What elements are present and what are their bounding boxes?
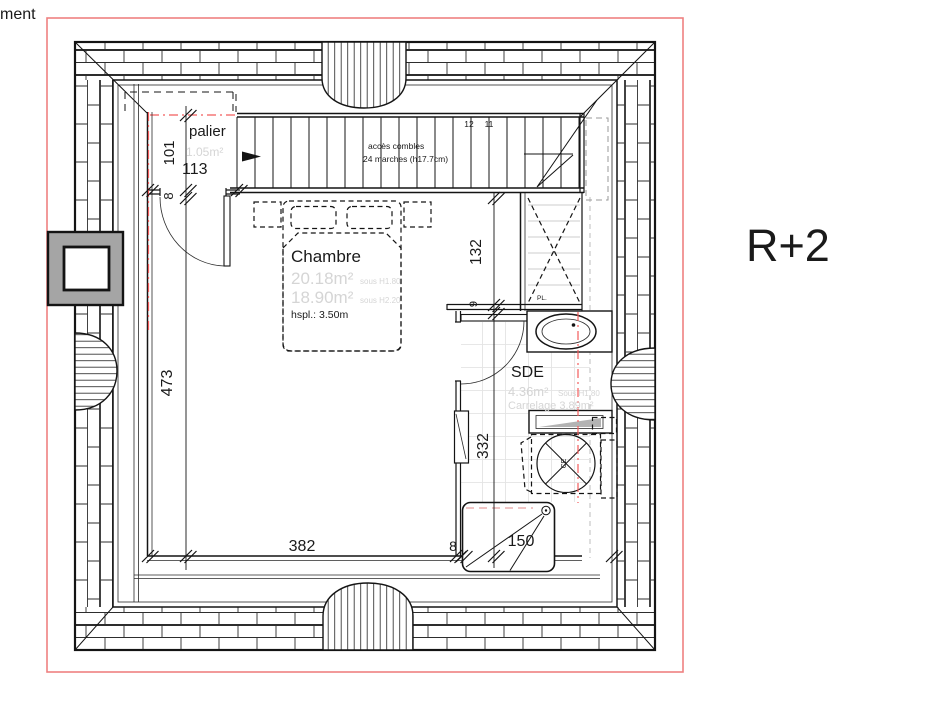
sink-counter <box>527 311 612 352</box>
sde-area-note: Sous H1.80 <box>558 389 600 398</box>
closet-cross-dashed <box>528 198 580 303</box>
palier-door-leaf <box>224 196 230 266</box>
dim-closet-depth: 132 <box>468 239 485 265</box>
chimney-flue <box>48 232 123 305</box>
sink-faucet <box>572 323 576 327</box>
sde-tiling-label: Carrelage 3.89m² <box>508 400 594 412</box>
dim-palier-width: 113 <box>182 161 208 178</box>
pillow-right <box>347 207 392 229</box>
room-label-sde: SDE <box>511 364 544 381</box>
floor-plan-page: 12 11 accès combles 24 marches (h17.7cm)… <box>0 0 930 725</box>
closet-shelves <box>528 205 580 285</box>
stair-step-number-11: 11 <box>485 119 494 129</box>
dim-sde-depth: 332 <box>475 433 492 459</box>
stairs-access-label: accès combles <box>368 141 424 151</box>
nightstand-left <box>254 202 281 227</box>
stair-step-number-12: 12 <box>464 119 474 129</box>
palier-door-swing <box>160 197 224 266</box>
chambre-area-h180-note: sous H1.80 <box>360 277 401 286</box>
floor-plan-drawing: 12 11 accès combles 24 marches (h17.7cm)… <box>0 0 930 725</box>
dim-chambre-width: 382 <box>289 538 316 555</box>
dormer-top <box>322 42 406 108</box>
room-label-chambre: Chambre <box>291 247 361 266</box>
chambre-ceiling-height: hspl.: 3.50m <box>291 309 348 321</box>
floor-level-label: R+2 <box>746 220 830 271</box>
stair-direction-arrow <box>242 152 261 162</box>
palier-area-label: 1.05m² <box>186 145 223 159</box>
chambre-area-h220-note: sous H2.20 <box>360 296 401 305</box>
attic-hatch-dashed <box>586 118 608 200</box>
stair-treads <box>237 117 579 188</box>
pillow-left <box>291 207 336 229</box>
room-label-palier: palier <box>189 123 226 140</box>
dormer-bottom <box>323 583 413 650</box>
dim-sde-width: 150 <box>508 533 535 550</box>
chambre-area-h180: 20.18m² <box>291 269 354 288</box>
staircase: 12 11 accès combles 24 marches (h17.7cm) <box>230 100 608 200</box>
closet-label: PL. <box>537 295 547 302</box>
chambre-labels: Chambre 20.18m² sous H1.80 18.90m² sous … <box>291 247 401 321</box>
nightstand-right <box>404 202 431 227</box>
sde-area-label: 4.36m² <box>508 384 549 399</box>
cropped-title-text: ment <box>0 6 36 23</box>
eave-storage-dashed <box>601 440 617 498</box>
water-heater-label: CE <box>561 458 568 468</box>
dim-wall-mid: 9 <box>468 301 480 307</box>
stairs-steps-label: 24 marches (h17.7cm) <box>363 154 448 164</box>
dim-palier-depth: 101 <box>161 140 178 165</box>
dim-wall-bottom: 8 <box>449 538 457 554</box>
chambre-area-h220: 18.90m² <box>291 288 354 307</box>
headroom-dashed-line <box>125 92 236 112</box>
dim-wall-left: 8 <box>161 192 176 199</box>
dim-chambre-height: 473 <box>159 370 176 397</box>
